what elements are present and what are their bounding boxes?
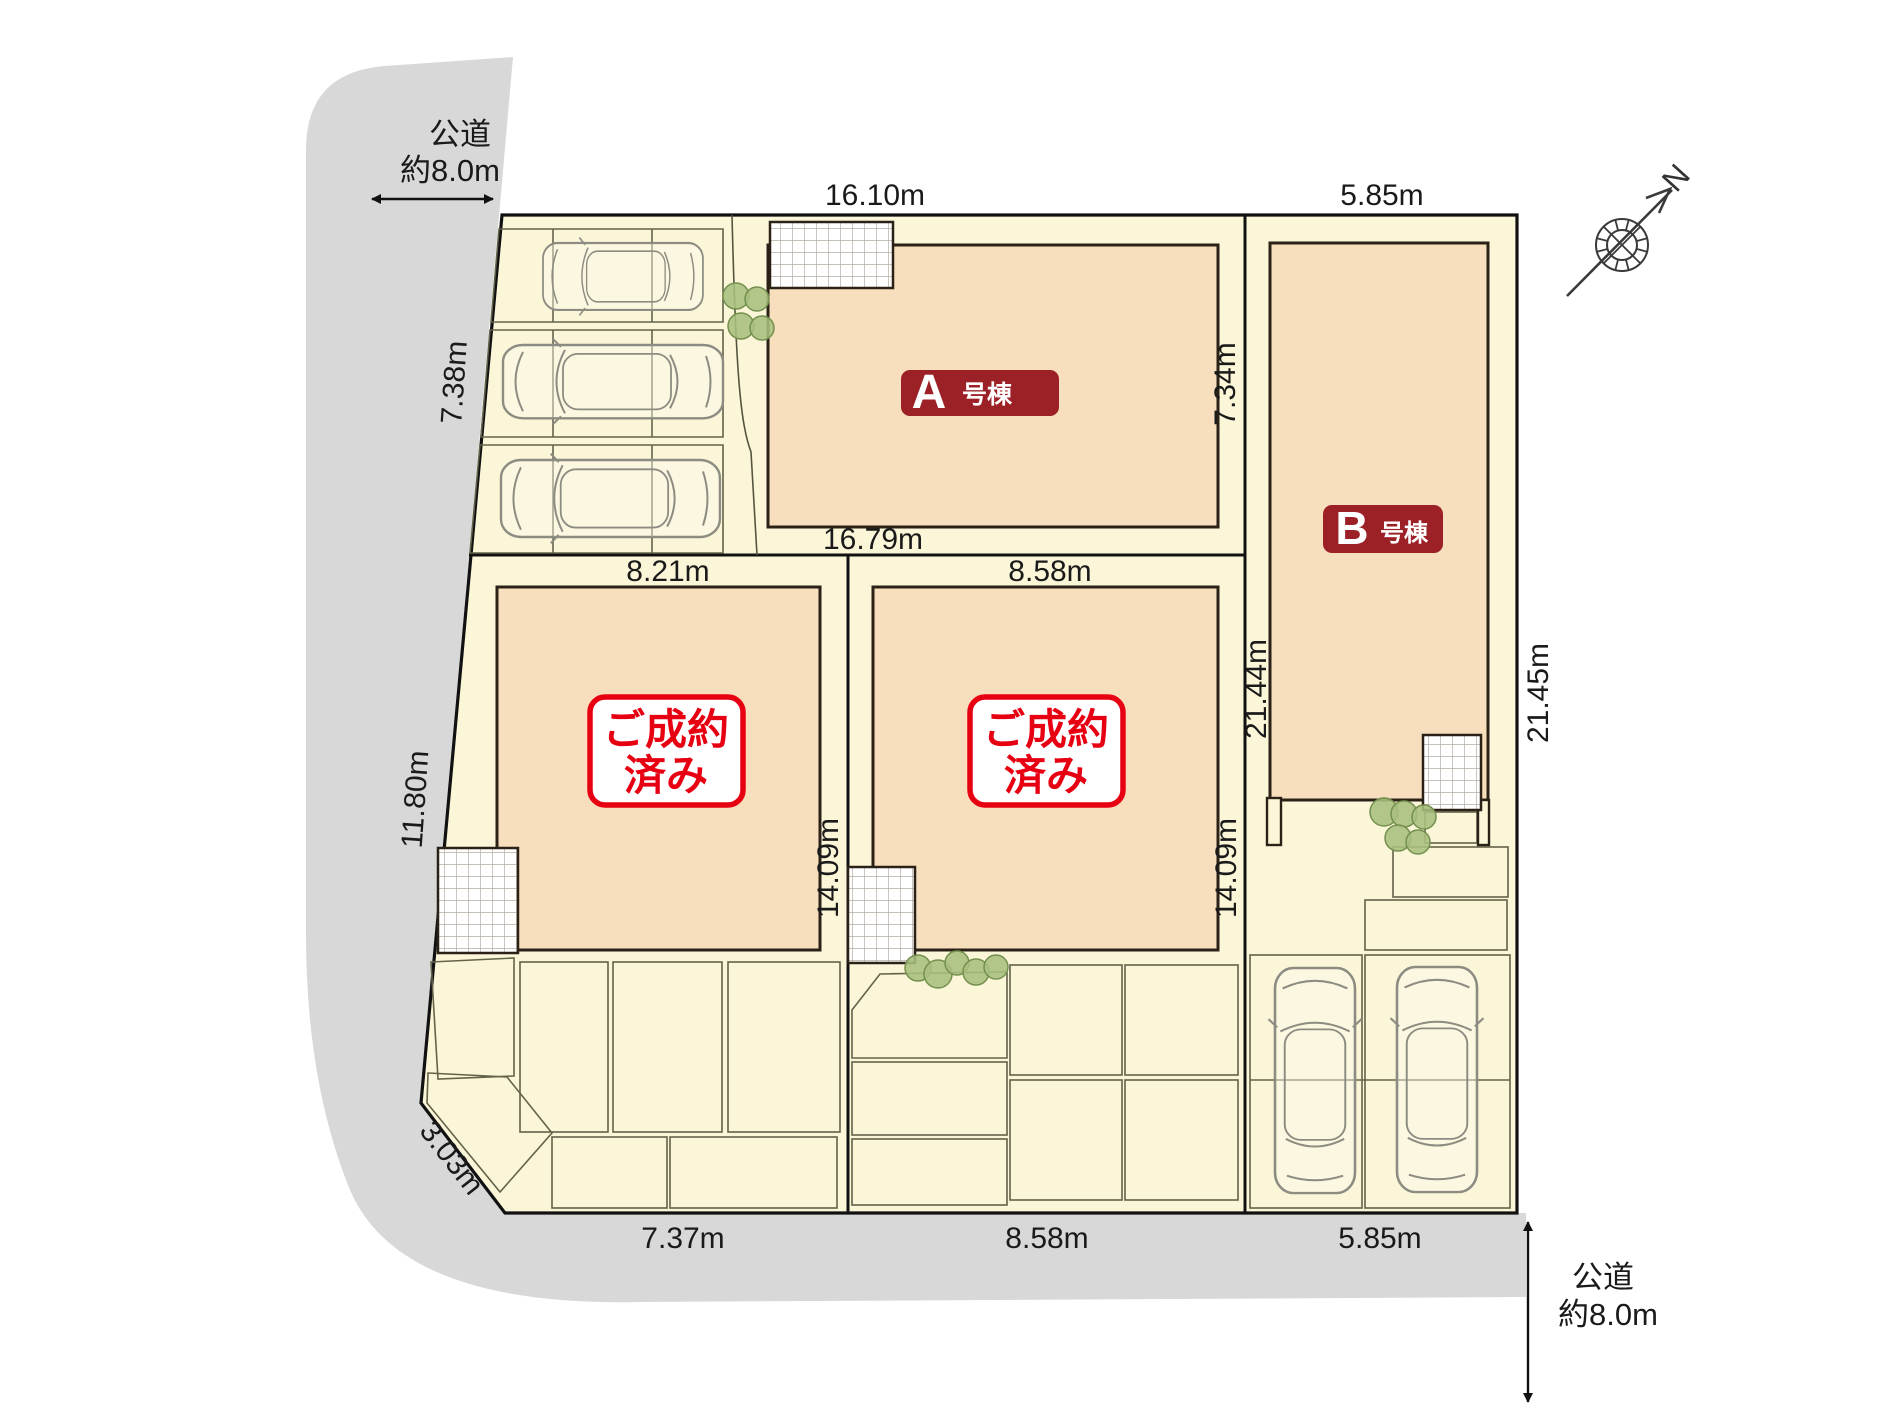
sold-middle-line1: ご成約 bbox=[983, 706, 1109, 753]
dim-b-right-side: 21.45m bbox=[1522, 643, 1555, 743]
road-top-left-line2: 約8.0m bbox=[400, 153, 500, 188]
car-top-3 bbox=[501, 454, 720, 543]
unit-b-suffix: 号棟 bbox=[1380, 520, 1429, 547]
entry-hatch-b bbox=[1423, 735, 1481, 810]
dim-sold-middle-side: 14.09m bbox=[1210, 818, 1243, 918]
dim-sold-middle-top: 8.58m bbox=[1008, 555, 1091, 588]
compass: N bbox=[1567, 157, 1697, 296]
dim-a-right: 7.34m bbox=[1209, 342, 1242, 425]
entry-hatch-sold-left bbox=[438, 848, 518, 953]
north-arrowhead-icon bbox=[1646, 189, 1670, 213]
sold-left-line1: ご成約 bbox=[603, 706, 729, 753]
unit-badge-a: A 号棟 bbox=[901, 366, 1059, 419]
dim-lot-a-top: 16.10m bbox=[825, 179, 925, 212]
dim-lot-b-top: 5.85m bbox=[1340, 179, 1423, 212]
dim-left-lower: 11.80m bbox=[396, 749, 436, 849]
building-b-entry-wall-left bbox=[1267, 798, 1281, 845]
dim-bottom-b-lot: 5.85m bbox=[1338, 1222, 1421, 1255]
sold-badge-left: ご成約 済み bbox=[590, 697, 743, 805]
sold-left-line2: 済み bbox=[624, 752, 708, 799]
road-bottom-right-line1: 公道 bbox=[1572, 1260, 1634, 1295]
car-bottom-1 bbox=[1269, 968, 1362, 1193]
entry-hatch-sold-middle bbox=[848, 867, 915, 963]
sold-badge-middle: ご成約 済み bbox=[970, 697, 1123, 805]
dim-bottom-left-lot: 7.37m bbox=[641, 1222, 724, 1255]
unit-badge-b: B 号棟 bbox=[1323, 502, 1443, 554]
dim-bottom-middle-lot: 8.58m bbox=[1005, 1222, 1088, 1255]
dim-sold-left-top: 8.21m bbox=[626, 555, 709, 588]
car-bottom-2 bbox=[1391, 967, 1484, 1192]
dim-sold-left-side: 14.09m bbox=[812, 818, 845, 918]
unit-b-letter: B bbox=[1335, 502, 1368, 554]
unit-a-letter: A bbox=[912, 366, 947, 419]
road-top-left-line1: 公道 bbox=[429, 117, 491, 152]
site-plan-svg: A 号棟 B 号棟 ご成約 済み ご成約 済み 16.10m 5.85m 7.3… bbox=[0, 0, 1900, 1425]
car-top-2 bbox=[503, 339, 723, 424]
unit-a-suffix: 号棟 bbox=[962, 381, 1013, 409]
entry-hatch-a bbox=[770, 222, 893, 288]
site-plan-page: A 号棟 B 号棟 ご成約 済み ご成約 済み 16.10m 5.85m 7.3… bbox=[0, 0, 1900, 1425]
dim-left-upper: 7.38m bbox=[435, 340, 474, 425]
dim-a-bottom: 16.79m bbox=[823, 523, 923, 556]
sold-middle-line2: 済み bbox=[1004, 752, 1088, 799]
compass-cross bbox=[1611, 234, 1633, 256]
road-bottom-right-line2: 約8.0m bbox=[1558, 1297, 1658, 1332]
car-top-1 bbox=[543, 238, 703, 316]
road-label-bottom-right: 公道 約8.0m bbox=[1528, 1222, 1658, 1402]
dim-b-left-side: 21.44m bbox=[1240, 639, 1273, 739]
